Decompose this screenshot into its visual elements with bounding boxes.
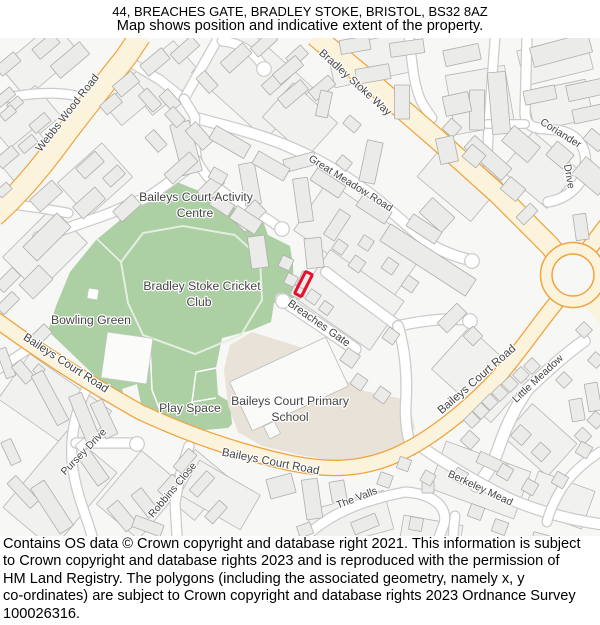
- svg-text:Bowling Green: Bowling Green: [51, 313, 131, 327]
- svg-text:Baileys Court Primary: Baileys Court Primary: [231, 394, 350, 408]
- svg-text:School: School: [271, 410, 308, 424]
- svg-text:Centre: Centre: [177, 206, 214, 220]
- svg-text:Baileys Court Activity: Baileys Court Activity: [139, 190, 254, 204]
- svg-text:Bradley Stoke Cricket: Bradley Stoke Cricket: [143, 279, 261, 293]
- svg-text:Club: Club: [186, 295, 211, 309]
- svg-text:Play Space: Play Space: [159, 401, 221, 415]
